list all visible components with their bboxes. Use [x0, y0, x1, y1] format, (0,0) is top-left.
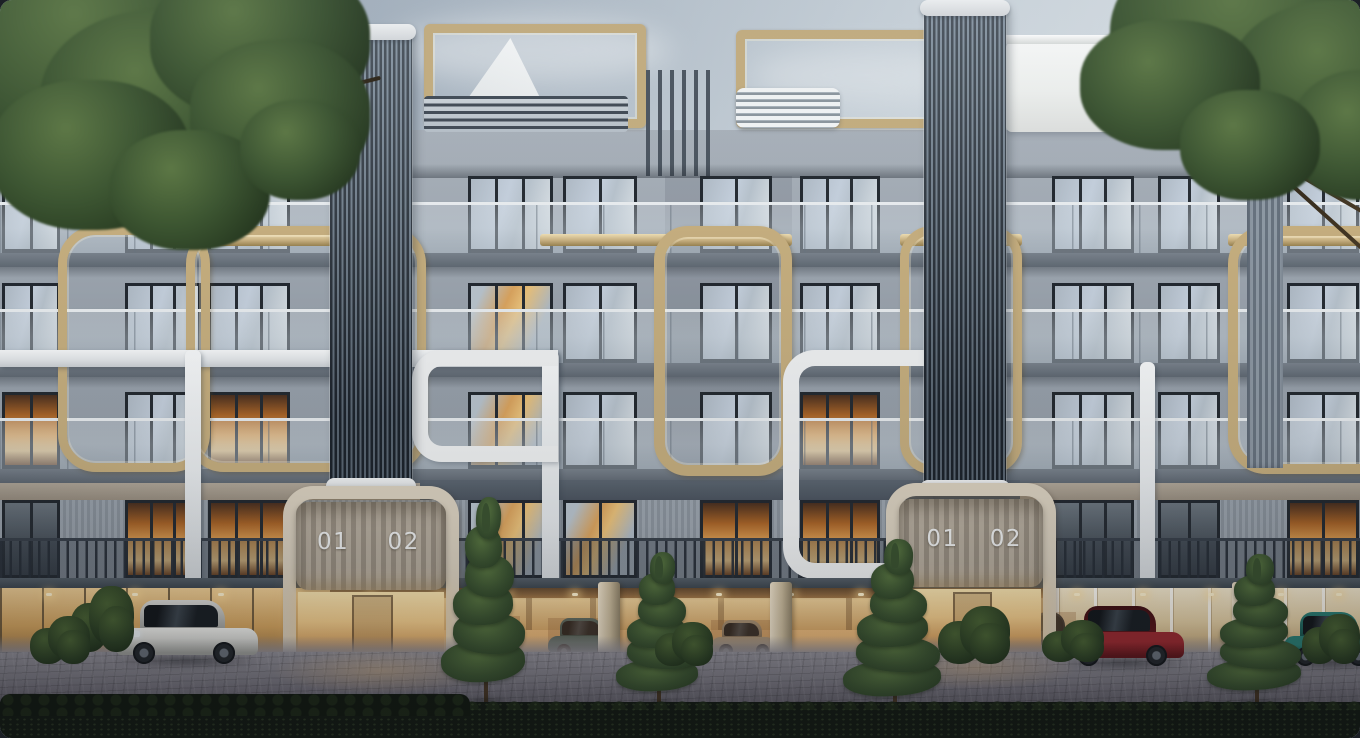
car-wheel — [213, 642, 235, 664]
pine-tip — [891, 543, 899, 568]
overhanging-foliage-right — [1180, 90, 1320, 200]
car-audi — [116, 600, 258, 666]
pine-tip — [655, 556, 663, 578]
shrub — [938, 606, 1010, 664]
car-window — [144, 605, 218, 627]
apartment-building-rendering: 01 02 01 02 — [0, 0, 1360, 738]
shrub-clump — [1070, 633, 1104, 662]
shrub — [1042, 620, 1104, 662]
shrub-clump — [970, 623, 1010, 664]
shrub — [1302, 614, 1360, 664]
pine-tree — [1210, 550, 1304, 706]
shrub-clump — [1328, 629, 1360, 664]
street-hedge-raised — [0, 694, 470, 716]
scene-foreground-layer — [0, 0, 1360, 738]
shrub — [655, 622, 713, 666]
shrub — [30, 616, 90, 664]
shrub-clump — [681, 635, 713, 666]
shrub-clump — [57, 630, 90, 664]
pine-tip — [482, 503, 490, 533]
car-wheel — [1146, 645, 1167, 666]
shrub-clump — [99, 606, 134, 652]
pine-tree — [444, 492, 528, 704]
overhanging-foliage-left — [240, 100, 360, 200]
pine-tip — [1253, 558, 1261, 580]
pine-tree — [846, 534, 944, 714]
